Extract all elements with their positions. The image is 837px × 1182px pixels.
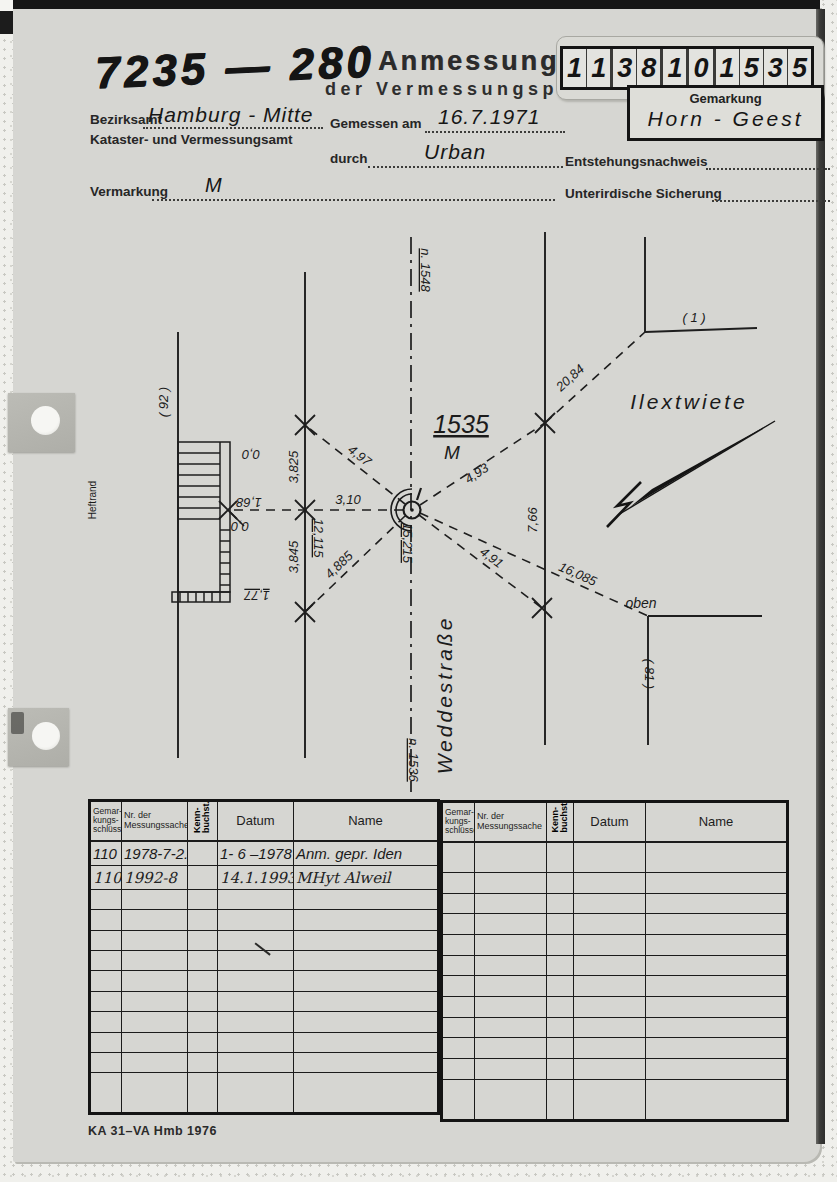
amt-label: Kataster- und Vermessungsamt — [90, 132, 293, 147]
table-row — [90, 971, 439, 991]
table-row — [442, 955, 788, 976]
scan-corner-black — [0, 11, 13, 34]
id-digit: 0 — [689, 49, 715, 87]
ink-blotch — [11, 712, 24, 734]
header-name: Name — [646, 802, 788, 842]
durch-value: Urban — [424, 140, 486, 164]
cell-nr: 1992-8 — [122, 866, 188, 890]
bezirksamt-line — [143, 127, 323, 129]
table-row — [442, 996, 788, 1017]
sicherung-line — [712, 200, 830, 202]
entstehung-label: Entstehungsnachweis — [565, 154, 708, 169]
table-row — [90, 910, 439, 930]
header-gemarkungsschluessel: Gemar-kungs-schlüssel — [90, 801, 122, 841]
gemessen-value: 16.7.1971 — [438, 105, 540, 129]
table-row — [442, 976, 788, 997]
header-gemarkungsschluessel: Gemar-kungs-schlüssel — [442, 802, 475, 842]
header-nr-der-messungssache: Nr. derMessungssache — [475, 802, 547, 842]
table-row — [442, 842, 788, 873]
vermarkung-label: Vermarkung — [90, 184, 168, 199]
header-kennbuchst: Kenn-buchst. — [188, 801, 218, 841]
gemessen-line — [425, 131, 565, 133]
table-row — [442, 1038, 788, 1059]
cell-key: 110 — [90, 866, 122, 890]
table-row: 110 1992-8 14.1.1993 MHyt Alweil — [90, 866, 439, 890]
measurement-log-table-left: Gemar-kungs-schlüssel Nr. derMessungssac… — [88, 799, 440, 1115]
scan-edge-right — [816, 9, 825, 1144]
cell-datum: 14.1.1993 — [218, 866, 294, 890]
punch-hole-icon — [31, 406, 60, 435]
table-row — [442, 934, 788, 955]
punch-tab-top — [8, 393, 75, 452]
id-digit: 1 — [716, 49, 740, 87]
scanned-survey-document: { "document": { "file_number": "7235 — 2… — [0, 0, 837, 1182]
table-row — [442, 1058, 788, 1079]
id-digit: 1 — [587, 49, 613, 87]
measurement-log-table-right: Gemar-kungs-schlüssel Nr. derMessungssac… — [440, 800, 789, 1122]
id-digit: 3 — [764, 49, 788, 87]
cell-kenn — [188, 866, 218, 890]
table-row: 110 1978-7-2.13 1- 6 –1978 Anm. gepr. Id… — [90, 841, 439, 866]
scan-edge-top — [13, 0, 820, 9]
cell-name: Anm. gepr. Iden — [294, 841, 439, 866]
id-digit: 5 — [788, 49, 811, 87]
point-id-strip: 1 1 3 8 1 0 1 5 3 5 — [560, 46, 814, 90]
id-digit: 1 — [663, 49, 689, 87]
gemessen-label: Gemessen am — [330, 116, 422, 131]
header-nr-der-messungssache: Nr. derMessungssache — [122, 801, 188, 841]
id-digit: 3 — [613, 49, 637, 87]
vermarkung-value: M — [205, 174, 222, 197]
table-row — [442, 1017, 788, 1038]
cell-datum: 1- 6 –1978 — [218, 841, 294, 866]
bezirksamt-value: Hamburg - Mitte — [148, 103, 314, 127]
table-row — [90, 1012, 439, 1032]
entstehung-line — [706, 168, 830, 170]
gemarkung-label: Gemarkung — [630, 91, 821, 106]
id-digit: 5 — [740, 49, 764, 87]
cell-key: 110 — [90, 841, 122, 866]
gemarkung-box: Gemarkung Horn - Geest — [627, 85, 824, 141]
table-row — [442, 914, 788, 935]
table-row — [90, 951, 439, 971]
table-row — [90, 991, 439, 1011]
page-title: Anmessung — [378, 46, 560, 77]
table-row — [442, 893, 788, 914]
cell-kenn — [188, 841, 218, 866]
cell-name: MHyt Alweil — [294, 866, 439, 890]
form-code: KA 31–VA Hmb 1976 — [88, 1124, 217, 1138]
punch-hole-icon — [32, 722, 60, 750]
table-row — [90, 1073, 439, 1114]
durch-label: durch — [330, 151, 368, 166]
table-row — [90, 1052, 439, 1072]
vermarkung-line — [152, 199, 555, 201]
gemarkung-value: Horn - Geest — [630, 107, 821, 131]
scan-corner-white — [0, 0, 13, 11]
table-row — [442, 1079, 788, 1120]
table-row — [442, 873, 788, 894]
table-row — [90, 890, 439, 910]
header-kennbuchst: Kenn-buchst. — [547, 802, 574, 842]
id-digit: 8 — [637, 49, 663, 87]
id-digit: 1 — [563, 49, 587, 87]
header-datum: Datum — [574, 802, 646, 842]
durch-line — [368, 166, 563, 168]
header-datum: Datum — [218, 801, 294, 841]
table-row — [90, 930, 439, 950]
header-name: Name — [294, 801, 439, 841]
cell-nr: 1978-7-2.13 — [122, 841, 188, 866]
table-row — [90, 1032, 439, 1052]
punch-tab-bottom — [8, 708, 69, 766]
sicherung-label: Unterirdische Sicherung — [565, 186, 722, 201]
